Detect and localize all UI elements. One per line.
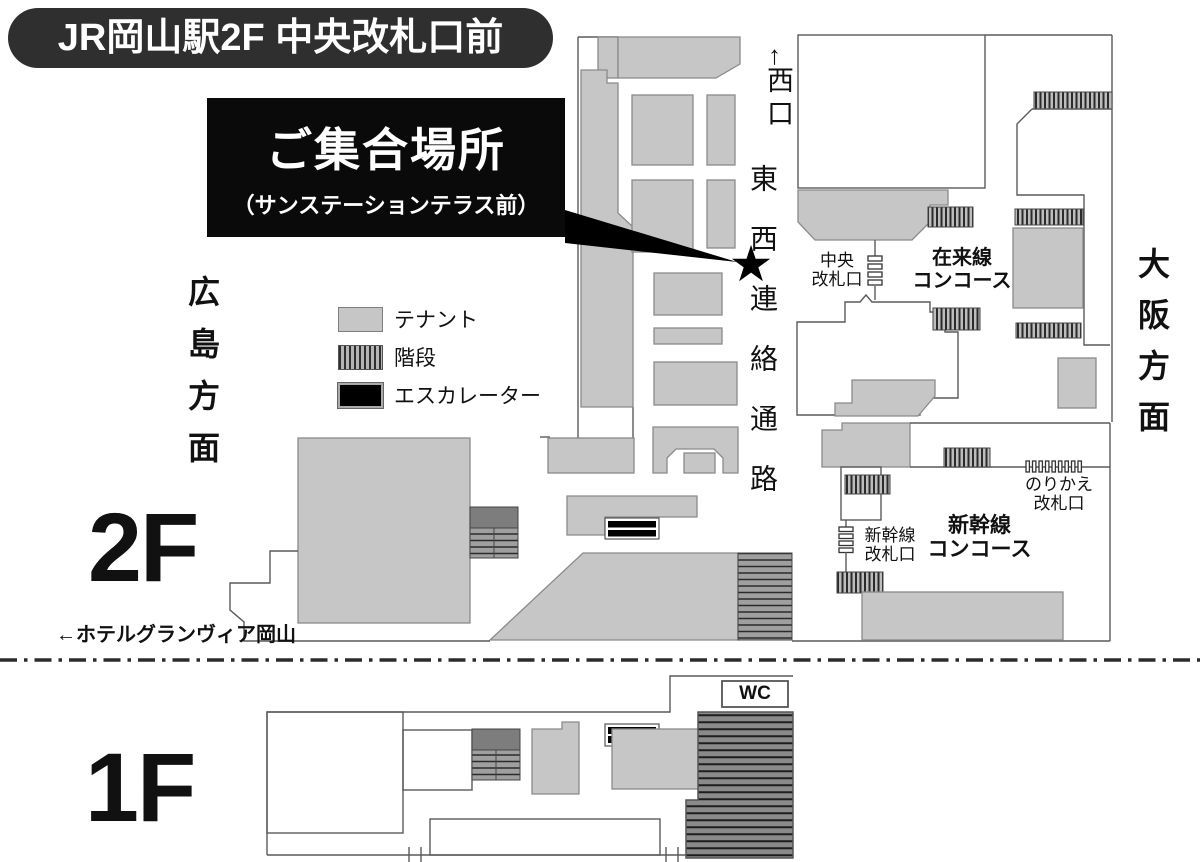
- osaka-direction-label: 大阪方面: [1136, 247, 1168, 451]
- tenant-block: [654, 362, 737, 405]
- room-outline: [403, 730, 472, 790]
- shinkansen-gate-icon: [839, 527, 853, 553]
- station-map-page: .tn{fill:#c6c6c6;stroke:#8a8a8a;stroke-w…: [0, 0, 1200, 862]
- stairs-swatch-icon: [338, 345, 383, 370]
- tenant-block: [684, 453, 715, 473]
- tenant-block: [862, 592, 1063, 640]
- escalator-swatch-icon: [338, 383, 383, 408]
- stairs-landing: [470, 507, 518, 528]
- meeting-place-subtitle: （サンステーションテラス前）: [207, 188, 565, 220]
- tenant-swatch-icon: [338, 307, 383, 332]
- page-title: JR岡山駅2F 中央改札口前: [58, 17, 503, 59]
- floor1-map: [267, 676, 793, 862]
- page-title-badge: JR岡山駅2F 中央改札口前: [8, 8, 553, 68]
- escalator-icon: [605, 518, 659, 539]
- legend-label: 階段: [394, 342, 436, 372]
- floor-2f-label: 2F: [88, 492, 197, 604]
- tenant-block: [532, 722, 579, 794]
- central-gate-label: 中央 改札口: [806, 251, 868, 289]
- tenant-block: [632, 95, 693, 165]
- wc-label: WC: [722, 681, 788, 707]
- stairs-wide: [738, 553, 792, 640]
- legend-item-stairs: 階段: [338, 344, 541, 370]
- stairs-block: [837, 572, 883, 593]
- tenant-block: [822, 423, 910, 467]
- legend-label: エスカレーター: [394, 380, 541, 410]
- tenant-block-large: [298, 438, 470, 623]
- legend-label: テナント: [394, 304, 478, 334]
- station-hall-outline: [798, 35, 985, 188]
- hotel-direction-label: ←ホテルグランヴィア岡山: [56, 618, 296, 647]
- tenant-block: [618, 37, 740, 78]
- map-legend: テナント 階段 エスカレーター: [338, 306, 541, 420]
- shinkansen-concourse-label: 新幹線 コンコース: [912, 514, 1047, 562]
- legend-item-escalator: エスカレーター: [338, 382, 541, 408]
- tenant-block: [707, 95, 735, 165]
- corridor-label: 東西連絡通路: [748, 164, 776, 524]
- stairs-wide: [686, 712, 793, 858]
- room-outline: [267, 712, 403, 833]
- east-room-outline: [1017, 109, 1112, 345]
- tenant-block: [654, 328, 722, 344]
- floor-1f-label: 1F: [85, 732, 194, 844]
- stairs-block: [1034, 92, 1112, 109]
- stairs-block: [845, 475, 890, 494]
- legend-item-tenant: テナント: [338, 306, 541, 332]
- stairs-block: [1016, 323, 1081, 338]
- transfer-gate-icon: [1026, 461, 1081, 472]
- meeting-place-title: ご集合場所: [207, 114, 565, 180]
- tenant-block: [490, 553, 738, 640]
- stairs-block: [928, 207, 973, 227]
- transfer-gate-label: のりかえ 改札口: [1003, 475, 1115, 513]
- stairs-block: [1015, 209, 1083, 225]
- tenant-block: [612, 729, 703, 789]
- tenant-block: [548, 438, 634, 473]
- central-gate-icon: [868, 256, 882, 285]
- tenant-block: [798, 190, 948, 240]
- room-outline: [430, 819, 660, 855]
- hiroshima-direction-label: 広島方面: [186, 275, 218, 483]
- conventional-concourse-label: 在来線 コンコース: [903, 247, 1021, 293]
- meeting-place-box: ご集合場所 （サンステーションテラス前）: [207, 98, 565, 237]
- stairs-block: [933, 308, 980, 330]
- west-exit-label: 西口: [764, 66, 791, 132]
- stairs-block: [944, 448, 990, 467]
- tenant-block: [1058, 358, 1096, 408]
- tenant-block: [1013, 228, 1083, 308]
- stairs-landing: [472, 729, 520, 750]
- tenant-block: [654, 273, 722, 315]
